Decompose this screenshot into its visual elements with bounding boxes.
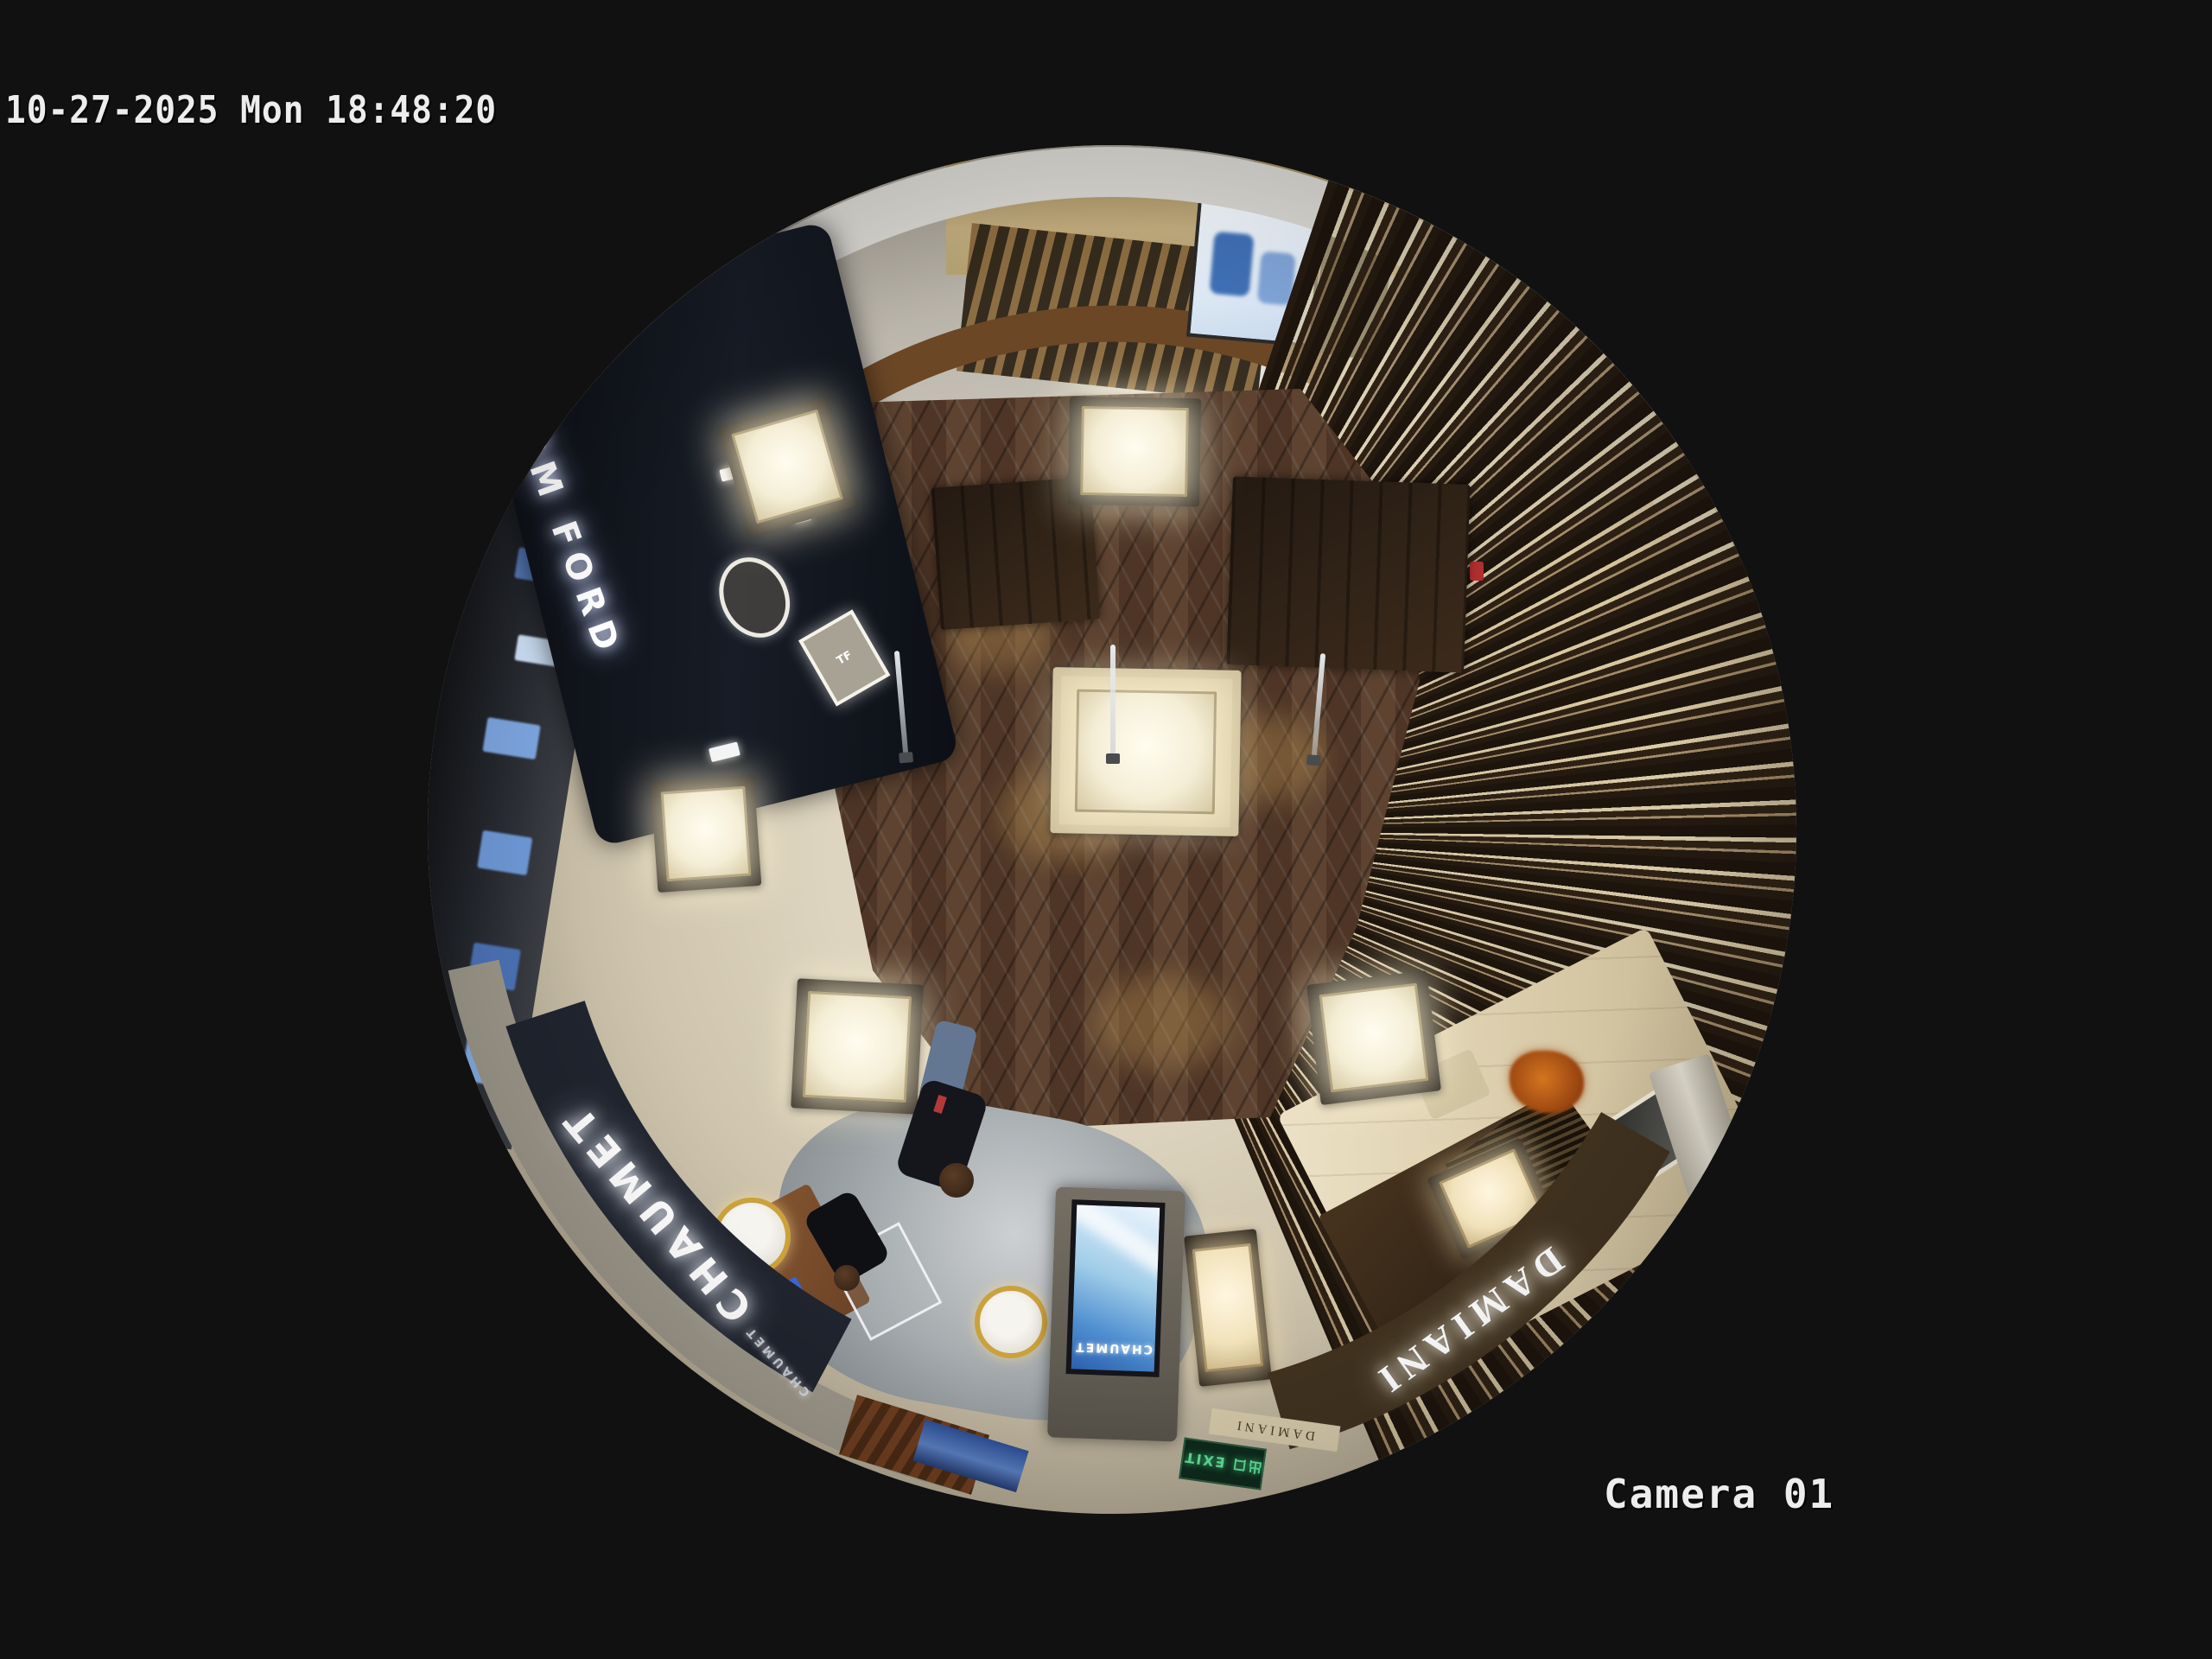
lens-vignette (428, 145, 1796, 1514)
osd-camera-label: Camera 01 (1604, 1471, 1834, 1517)
camera-frame: TOM FORD TF (0, 0, 2212, 1659)
osd-timestamp: 10-27-2025 Mon 18:48:20 (5, 88, 497, 132)
fisheye-view: TOM FORD TF (428, 145, 1796, 1514)
